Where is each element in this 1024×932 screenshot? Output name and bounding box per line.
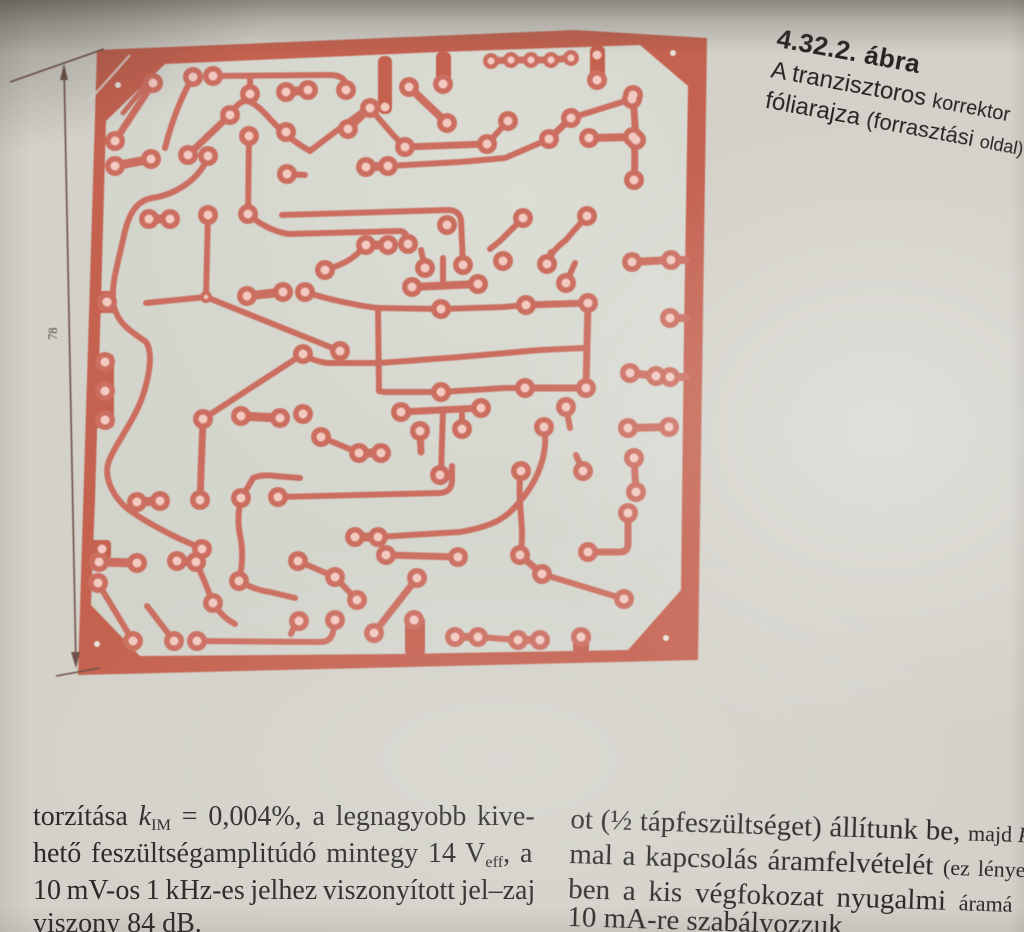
svg-text:78: 78 [46,328,60,341]
